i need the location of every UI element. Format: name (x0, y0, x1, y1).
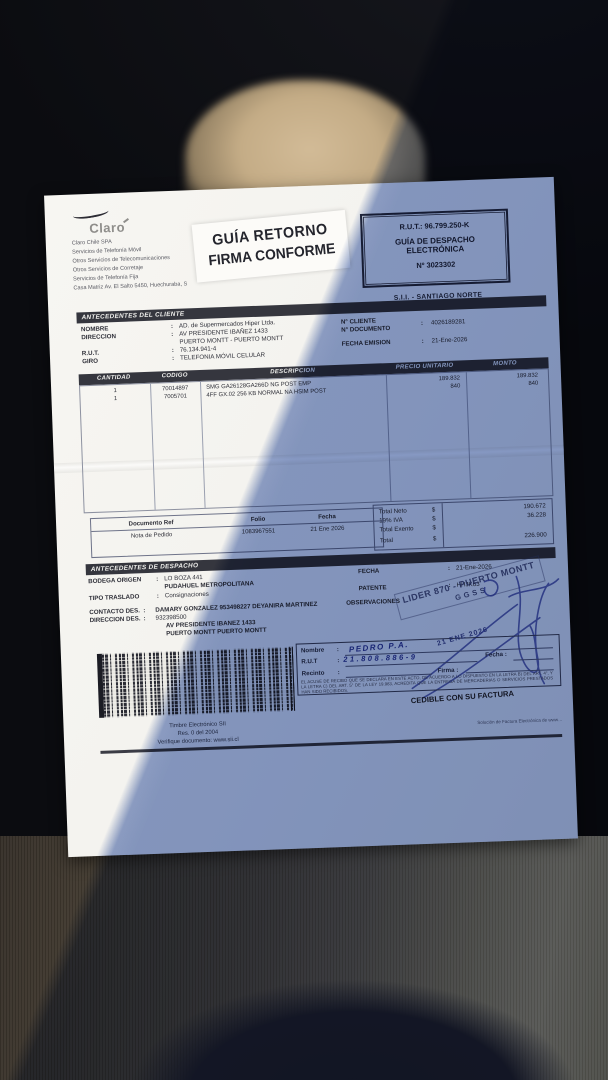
date-stamp: 21 ENE 2026 (436, 626, 489, 649)
rut-box: R.U.T.: 96.799.250-K GUÍA DE DESPACHO EL… (360, 209, 511, 288)
direccion-des-label: DIRECCION DES. (90, 615, 141, 624)
fecha-emision-label: FECHA EMISION (342, 339, 391, 348)
fecha-emision-value: 21-Ene-2026 (432, 336, 468, 345)
contacto-value: DAMARY GONZALEZ 953498227 DEYANIRA MARTI… (155, 601, 317, 614)
colon: : (157, 593, 159, 601)
cedible-text: CEDIBLE CON SU FACTURA (411, 689, 515, 705)
pdf417-barcode (97, 647, 295, 718)
document-paper: Claro Claro Chile SPA Servicios de Telef… (44, 177, 578, 857)
total-label: Total Neto (379, 507, 407, 515)
column-divider (386, 375, 392, 501)
colon: : (156, 576, 158, 584)
colon: : (143, 607, 145, 615)
handwritten-rut: 21.808.886-9 (343, 652, 417, 664)
item-amount: 840 (466, 381, 538, 391)
receipt-fecha-label: Fecha : (485, 651, 507, 659)
colon: : (422, 338, 424, 346)
colon: : (338, 669, 340, 677)
item-code: 7005701 (150, 393, 200, 402)
giro-label: GIRO (82, 358, 98, 366)
ref-table: Documento Ref Folio Fecha Nota de Pedido… (90, 507, 384, 558)
direccion-label: DIRECCION (81, 333, 116, 342)
colon: : (337, 646, 339, 654)
totals-divider (442, 503, 445, 547)
n-documento-label: N° DOCUMENTO (341, 325, 390, 334)
return-sticker: GUÍA RETORNO FIRMA CONFORME (192, 210, 351, 283)
supplier-info: Claro Chile SPA Servicios de Telefonía M… (72, 235, 188, 293)
receipt-rut-label: R.U.T (301, 658, 317, 666)
colon: : (421, 320, 423, 328)
lap-fabric (0, 836, 608, 1080)
photo-background: Claro Claro Chile SPA Servicios de Telef… (0, 0, 608, 1080)
pen-mark (72, 206, 109, 221)
column-divider (150, 384, 156, 510)
column-divider (200, 382, 206, 508)
tipo-traslado-value: Consignaciones (165, 591, 209, 600)
observaciones-label: OBSERVACIONES (346, 598, 400, 607)
provider-footnote: Solución de Factura Electrónica de www… (417, 717, 563, 728)
currency: $ (433, 535, 437, 543)
colon: : (171, 331, 173, 339)
client-rut-label: R.U.T. (82, 350, 99, 358)
receipt-box: Nombre : R.U.T : Fecha : Recinto : Firma… (296, 634, 562, 696)
ref-doc: Nota de Pedido (92, 531, 212, 543)
column-divider (466, 372, 472, 498)
colon: : (143, 615, 145, 623)
colon: : (337, 657, 339, 665)
colon: : (171, 323, 173, 331)
total-label: Total Exento (379, 525, 413, 534)
write-line (513, 658, 553, 660)
document-number: Nº 3023302 (364, 258, 508, 272)
colon: : (172, 347, 174, 355)
currency: $ (432, 515, 436, 523)
currency: $ (432, 506, 436, 514)
document-type: GUÍA DE DESPACHO ELECTRÓNICA (363, 234, 508, 258)
colon: : (448, 565, 450, 573)
ref-fecha: 21 Ene 2026 (301, 525, 353, 534)
claro-logo: Claro (89, 220, 125, 237)
colon: : (172, 355, 174, 363)
total-label: Total (380, 537, 393, 545)
despacho-fecha-label: FECHA (358, 568, 380, 576)
totals-box: Total Neto $ 190.672 19% IVA $ 36.228 To… (373, 498, 555, 551)
total-value: 226.900 (449, 531, 547, 542)
items-table-body: 1 70014897 SMG GA26128GA266D NG POST EMP… (79, 368, 553, 513)
rut-number: R.U.T.: 96.799.250-K (362, 220, 506, 234)
client-section-title: ANTECEDENTES DEL CLIENTE (76, 295, 546, 323)
ref-header-fecha: Fecha (301, 512, 353, 521)
patente-label: PATENTE (359, 584, 387, 592)
n-documento-value: 4026189281 (431, 318, 466, 327)
receipt-nombre-label: Nombre (301, 647, 325, 655)
currency: $ (432, 524, 436, 532)
total-value: 36.228 (448, 511, 546, 522)
tipo-traslado-label: TIPO TRASLADO (89, 593, 140, 602)
ref-folio: 1083967551 (221, 528, 295, 538)
item-qty: 1 (80, 395, 150, 405)
item-price: 840 (386, 383, 460, 393)
total-label: 19% IVA (379, 517, 403, 525)
bodega-label: BODEGA ORIGEN (88, 576, 141, 585)
receipt-recinto-label: Recinto (302, 670, 325, 678)
